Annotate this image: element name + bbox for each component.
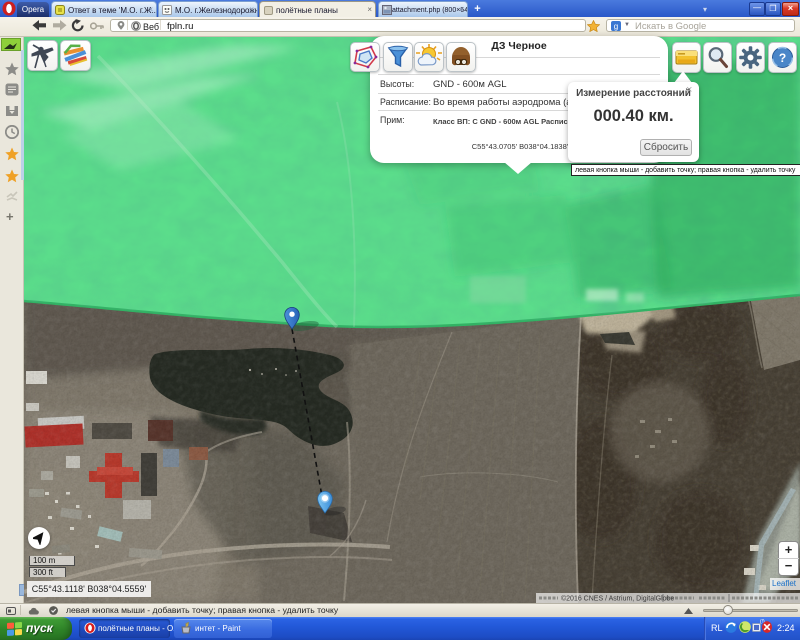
svg-text:©2016 CNES / Astrium, DigitalG: ©2016 CNES / Astrium, DigitalGlobe xyxy=(561,595,674,603)
svg-text:?: ? xyxy=(779,51,786,65)
svg-text:g: g xyxy=(614,22,618,31)
